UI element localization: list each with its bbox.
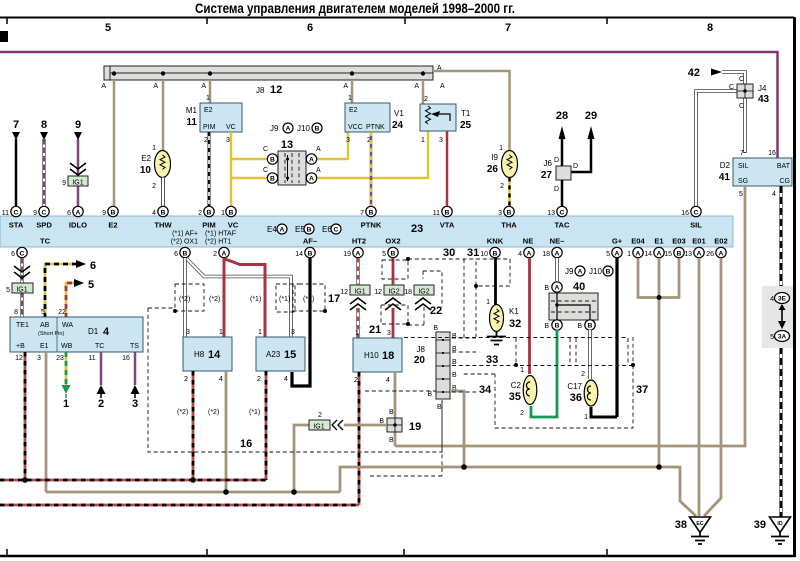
svg-text:5: 5 [382,251,386,258]
svg-text:36: 36 [570,392,582,404]
svg-text:B: B [308,251,313,258]
svg-text:A: A [76,210,81,217]
svg-text:A: A [697,251,702,258]
svg-text:B: B [577,323,582,330]
svg-text:TC: TC [40,237,51,246]
svg-text:16: 16 [122,355,130,362]
svg-text:J10: J10 [297,124,310,133]
svg-text:23: 23 [411,223,423,235]
svg-text:E1: E1 [654,237,664,246]
svg-text:C: C [14,210,19,217]
svg-text:2: 2 [257,376,261,383]
svg-text:D: D [573,163,578,170]
svg-text:4: 4 [518,251,522,258]
svg-text:40: 40 [573,281,585,293]
svg-text:A: A [636,251,641,258]
svg-text:IG2: IG2 [418,289,429,296]
svg-text:5: 5 [6,287,10,294]
svg-text:E1: E1 [40,343,49,350]
svg-text:J9: J9 [565,267,574,276]
svg-text:J10: J10 [589,267,602,276]
svg-text:E2: E2 [141,154,151,163]
svg-text:14: 14 [208,349,221,361]
svg-text:A: A [309,176,314,183]
svg-text:8: 8 [41,119,47,131]
svg-text:J6: J6 [544,159,553,168]
svg-text:38: 38 [675,519,687,531]
svg-text:24: 24 [392,120,404,131]
svg-text:2: 2 [204,137,208,144]
svg-text:VCC: VCC [348,124,363,131]
svg-text:TC: TC [95,343,104,350]
svg-text:HT2: HT2 [352,237,366,246]
svg-text:H10: H10 [364,351,379,360]
svg-text:Система управления двигателем: Система управления двигателем моделей 19… [195,1,515,16]
svg-text:B: B [207,210,212,217]
svg-text:5: 5 [88,279,94,291]
svg-text:B: B [389,437,394,444]
svg-text:J9: J9 [270,124,279,133]
svg-text:C: C [560,210,565,217]
svg-text:E01: E01 [692,237,706,246]
svg-text:V1: V1 [394,109,404,118]
svg-text:J8: J8 [417,345,426,354]
svg-text:9: 9 [75,119,81,131]
svg-text:B: B [369,210,374,217]
svg-text:4: 4 [386,377,390,384]
svg-text:5: 5 [41,309,45,316]
svg-text:1: 1 [221,210,225,217]
svg-text:E2: E2 [204,107,213,114]
svg-text:A: A [316,146,321,153]
svg-text:B: B [307,227,312,234]
svg-text:B: B [315,126,320,133]
svg-text:2: 2 [98,398,104,410]
svg-text:1: 1 [63,398,69,410]
svg-text:B: B [507,210,512,217]
svg-text:(*1): (*1) [250,296,261,303]
svg-text:2: 2 [581,371,585,378]
svg-text:D1: D1 [88,327,99,336]
svg-text:13: 13 [684,251,692,258]
svg-text:TAC: TAC [554,221,570,230]
svg-text:I9: I9 [491,153,498,162]
svg-text:12: 12 [15,355,23,362]
svg-text:12: 12 [374,289,382,296]
svg-text:C: C [739,103,744,110]
svg-text:14: 14 [295,251,303,258]
svg-text:25: 25 [460,120,472,131]
svg-text:19: 19 [343,251,351,258]
svg-text:9: 9 [102,210,106,217]
svg-text:J8: J8 [256,86,265,95]
svg-text:6: 6 [11,251,15,258]
svg-text:(*2): (*2) [209,296,220,303]
svg-text:28: 28 [556,110,568,122]
svg-text:A: A [309,157,314,164]
svg-text:22: 22 [58,309,66,316]
svg-text:3: 3 [132,398,138,410]
svg-text:4: 4 [770,296,774,303]
svg-text:C: C [739,76,744,83]
svg-text:A: A [286,126,291,133]
svg-text:E2: E2 [349,107,358,114]
svg-text:4: 4 [219,376,223,383]
svg-text:B: B [161,210,166,217]
svg-text:13: 13 [547,210,555,217]
svg-text:15: 15 [284,349,296,361]
svg-text:SIL: SIL [738,163,749,170]
svg-text:A: A [440,83,445,90]
svg-text:IG1: IG1 [313,424,324,431]
svg-text:A: A [101,83,106,90]
svg-text:26: 26 [487,164,499,175]
svg-text:IDLO: IDLO [69,221,87,230]
svg-text:SIL: SIL [690,221,702,230]
svg-text:11: 11 [2,210,9,217]
svg-text:37: 37 [636,384,648,396]
svg-text:B: B [111,210,116,217]
svg-text:1: 1 [258,329,262,336]
svg-text:2: 2 [318,412,322,419]
svg-text:1: 1 [499,145,503,152]
svg-text:2: 2 [184,376,188,383]
svg-text:A: A [153,83,158,90]
svg-text:C: C [334,227,339,234]
svg-text:PTNK: PTNK [361,221,382,230]
svg-text:2: 2 [152,183,156,190]
svg-text:(*2): (*2) [208,409,219,416]
svg-text:A: A [356,251,361,258]
svg-text:32: 32 [509,318,521,330]
svg-text:2: 2 [354,377,358,384]
svg-text:D: D [554,157,559,164]
svg-text:6: 6 [90,260,96,272]
svg-text:B: B [452,359,457,366]
svg-text:3: 3 [186,329,190,336]
svg-text:VC: VC [228,221,239,230]
svg-text:B: B [588,323,593,330]
svg-text:21: 21 [369,324,381,336]
svg-text:1: 1 [219,329,223,336]
svg-text:31: 31 [467,247,479,259]
svg-text:3E: 3E [778,296,787,303]
svg-text:12: 12 [340,289,348,296]
svg-text:35: 35 [509,391,521,403]
svg-text:(*1): (*1) [249,409,260,416]
svg-text:1: 1 [348,95,352,102]
svg-text:A: A [719,251,724,258]
svg-text:16: 16 [681,210,689,217]
svg-text:7: 7 [505,22,511,34]
svg-text:SG: SG [738,178,748,185]
svg-text:TE1: TE1 [16,322,29,329]
svg-text:E03: E03 [672,237,686,246]
svg-text:SPD: SPD [36,221,52,230]
svg-text:IG1: IG1 [16,287,27,294]
svg-text:C: C [42,210,47,217]
svg-text:4: 4 [103,326,110,338]
svg-text:4: 4 [152,210,156,217]
svg-text:1: 1 [206,95,210,102]
svg-text:A: A [555,285,560,292]
svg-text:B: B [433,325,438,332]
svg-text:BAT: BAT [777,163,791,170]
svg-text:A: A [578,269,583,276]
svg-text:3A: 3A [778,334,787,341]
svg-text:ID: ID [777,521,782,527]
svg-text:A: A [657,251,662,258]
svg-text:(*2) HT1: (*2) HT1 [205,239,232,246]
svg-text:3: 3 [37,355,41,362]
svg-text:A: A [343,83,348,90]
svg-text:(*2): (*2) [179,296,190,303]
svg-text:34: 34 [479,384,492,396]
svg-text:5: 5 [770,334,774,341]
svg-text:4: 4 [772,191,776,198]
svg-text:+B: +B [16,343,25,350]
svg-text:B: B [229,210,234,217]
svg-text:11: 11 [88,355,95,362]
svg-text:B: B [183,251,188,258]
svg-text:20: 20 [414,355,426,366]
svg-text:5: 5 [105,22,111,34]
svg-text:IG1: IG1 [72,180,83,187]
svg-text:(*1): (*1) [279,296,290,303]
svg-text:B: B [606,269,611,276]
svg-text:THW: THW [154,221,172,230]
svg-text:K1: K1 [509,307,519,316]
svg-text:PTNK: PTNK [366,124,385,131]
svg-text:PIM: PIM [202,221,216,230]
svg-text:3: 3 [439,137,443,144]
svg-text:9: 9 [62,180,66,187]
svg-text:EC: EC [696,521,703,527]
svg-text:14: 14 [644,251,652,258]
svg-text:H8: H8 [194,350,205,359]
svg-text:29: 29 [585,110,597,122]
svg-text:D2: D2 [720,161,731,170]
svg-text:IG1: IG1 [354,289,365,296]
svg-text:B: B [555,323,560,330]
svg-text:(*2) OX1: (*2) OX1 [171,239,198,246]
svg-text:1: 1 [584,414,588,421]
svg-text:THA: THA [501,221,517,230]
svg-text:2: 2 [213,251,217,258]
svg-text:6: 6 [307,22,313,34]
svg-text:A: A [222,251,227,258]
svg-text:6: 6 [174,251,178,258]
svg-text:WA: WA [62,322,73,329]
svg-text:E04: E04 [631,237,645,246]
svg-text:D: D [554,186,559,193]
svg-text:19: 19 [409,421,421,433]
svg-text:C: C [263,146,268,153]
svg-text:M1: M1 [186,106,198,115]
svg-text:16: 16 [240,438,252,450]
svg-text:3: 3 [387,330,391,337]
svg-text:15: 15 [664,251,672,258]
svg-text:CG: CG [780,178,791,185]
svg-text:TS: TS [130,343,139,350]
svg-text:2: 2 [520,410,524,417]
svg-text:B: B [544,285,549,292]
svg-text:11: 11 [433,210,440,217]
svg-text:C: C [729,84,734,91]
svg-text:42: 42 [688,67,700,79]
svg-text:17: 17 [328,293,340,305]
svg-text:18: 18 [382,350,394,362]
svg-text:39: 39 [754,519,766,531]
svg-text:IG2: IG2 [388,289,399,296]
svg-text:A: A [555,251,560,258]
svg-text:NE–: NE– [550,237,565,246]
svg-text:1: 1 [355,330,359,337]
svg-text:1: 1 [486,299,490,306]
svg-text:G+: G+ [612,237,623,246]
svg-text:AB: AB [40,322,50,329]
svg-text:(*2): (*2) [177,409,188,416]
svg-text:C: C [20,251,25,258]
svg-text:7: 7 [13,119,19,131]
svg-text:43: 43 [758,94,770,105]
svg-text:C: C [263,167,268,174]
svg-text:3: 3 [291,329,295,336]
svg-text:26: 26 [706,251,714,258]
svg-text:2: 2 [424,96,428,103]
svg-text:A: A [316,167,321,174]
svg-text:23: 23 [56,355,64,362]
svg-text:E4: E4 [267,225,277,234]
svg-text:B: B [544,323,549,330]
svg-text:A: A [414,83,419,90]
svg-text:3: 3 [498,210,502,217]
svg-text:NE: NE [523,237,534,246]
svg-text:A: A [201,83,206,90]
svg-text:STA: STA [9,221,24,230]
svg-text:VTA: VTA [440,221,455,230]
svg-text:1: 1 [520,367,524,374]
svg-text:2: 2 [500,183,504,190]
svg-text:5: 5 [739,191,743,198]
svg-text:41: 41 [719,172,731,183]
svg-text:B: B [677,251,682,258]
svg-text:KNK: KNK [487,237,504,246]
svg-text:33: 33 [486,354,498,366]
svg-text:OX2: OX2 [385,237,400,246]
svg-text:11: 11 [186,117,197,128]
svg-text:6: 6 [67,210,71,217]
svg-text:1: 1 [152,145,156,152]
svg-text:C17: C17 [567,382,582,391]
svg-text:3: 3 [346,137,350,144]
svg-text:4: 4 [284,376,288,383]
svg-text:10: 10 [140,165,152,176]
svg-text:7: 7 [740,150,744,157]
svg-text:T1: T1 [461,109,471,118]
svg-text:WB: WB [61,343,73,350]
svg-text:B: B [427,391,432,398]
svg-text:B: B [270,157,275,164]
svg-text:J4: J4 [758,84,767,93]
svg-text:8: 8 [14,309,18,316]
svg-text:C2: C2 [511,381,522,390]
svg-text:B: B [389,409,394,416]
svg-text:B: B [445,210,450,217]
svg-text:C: C [694,210,699,217]
svg-text:E2: E2 [108,221,117,230]
svg-text:(Short Pin): (Short Pin) [38,331,64,337]
svg-text:18: 18 [542,251,550,258]
svg-text:E02: E02 [714,237,728,246]
svg-text:B: B [437,404,442,411]
svg-text:10: 10 [480,251,488,258]
svg-text:A: A [615,251,620,258]
svg-text:B: B [452,372,457,379]
svg-text:5: 5 [606,251,610,258]
svg-text:1: 1 [627,251,631,258]
svg-text:13: 13 [281,139,293,151]
svg-text:22: 22 [430,305,442,317]
svg-text:VC: VC [226,124,236,131]
svg-text:7: 7 [360,210,364,217]
svg-text:B: B [493,251,498,258]
svg-text:18: 18 [404,289,412,296]
svg-text:8: 8 [707,22,713,34]
svg-text:2: 2 [198,210,202,217]
svg-text:27: 27 [541,170,553,181]
svg-text:A: A [280,227,285,234]
svg-text:B: B [452,333,457,340]
svg-text:B: B [391,251,396,258]
svg-text:PIM: PIM [203,124,216,131]
svg-text:(*1) AF+: (*1) AF+ [172,231,198,238]
svg-text:1: 1 [421,137,425,144]
svg-text:16: 16 [768,150,776,157]
svg-text:30: 30 [443,247,455,259]
svg-text:B: B [270,176,275,183]
svg-text:(*1) HTAF: (*1) HTAF [205,231,236,238]
svg-text:9: 9 [33,210,37,217]
svg-text:3: 3 [226,137,230,144]
svg-text:AF–: AF– [303,237,317,246]
svg-text:A23: A23 [266,350,281,359]
svg-text:A: A [527,251,532,258]
svg-text:12: 12 [270,84,282,96]
